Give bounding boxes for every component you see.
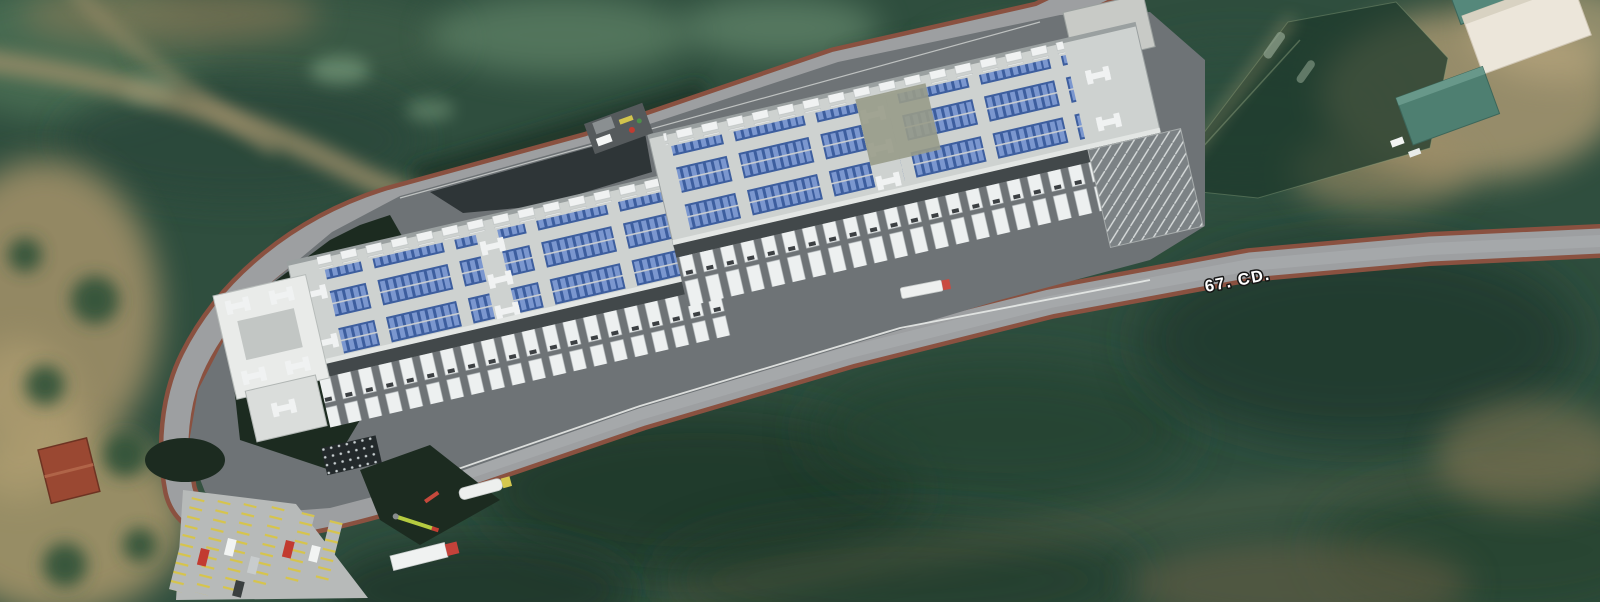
terrain-highlight [406, 98, 454, 122]
shrub [43, 543, 87, 587]
landscape-bed [145, 438, 225, 482]
satellite-map-view[interactable]: 67. CD. [0, 0, 1600, 602]
shrub [25, 365, 65, 405]
shrub [8, 238, 42, 272]
shrub [71, 276, 119, 324]
shrub [123, 528, 157, 562]
shrub [103, 433, 147, 477]
terrain-highlight [310, 56, 370, 84]
terrain-patch [810, 360, 1190, 500]
